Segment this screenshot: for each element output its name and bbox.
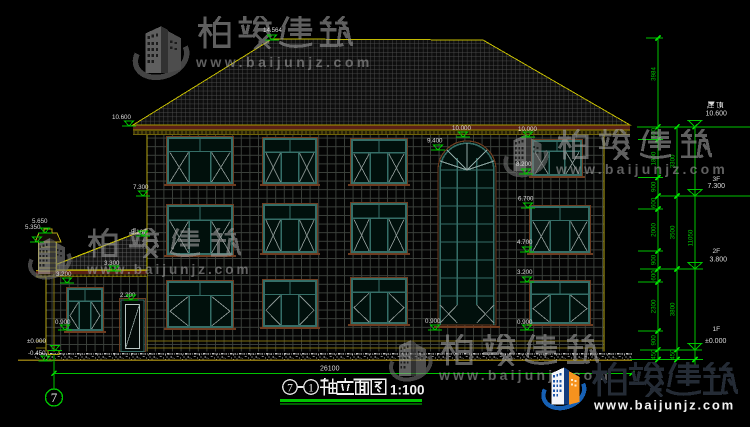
- svg-text:www.baijunjz.com: www.baijunjz.com: [438, 367, 611, 383]
- svg-text:900: 900: [650, 181, 657, 192]
- svg-text:www.baijunjz.com: www.baijunjz.com: [195, 54, 373, 70]
- svg-text:6.700: 6.700: [518, 195, 534, 202]
- svg-text:5.350: 5.350: [25, 224, 41, 231]
- svg-text:450: 450: [650, 349, 657, 360]
- svg-text:2F: 2F: [713, 248, 721, 255]
- svg-text:26100: 26100: [320, 365, 340, 372]
- svg-text:7: 7: [51, 390, 58, 405]
- svg-text:900: 900: [650, 254, 657, 265]
- svg-text:8.200: 8.200: [516, 161, 532, 168]
- svg-text:www.baijunjz.com: www.baijunjz.com: [555, 161, 728, 177]
- svg-text:10.000: 10.000: [452, 125, 471, 132]
- svg-text:3.800: 3.800: [710, 256, 728, 263]
- svg-text:0.900: 0.900: [425, 318, 441, 325]
- svg-text:3.200: 3.200: [56, 271, 72, 278]
- svg-text:±0.000: ±0.000: [705, 338, 726, 345]
- svg-text:9.400: 9.400: [427, 137, 443, 144]
- svg-text:1: 1: [308, 383, 314, 395]
- svg-text:600: 600: [650, 270, 657, 281]
- svg-text:7: 7: [287, 383, 293, 395]
- svg-text:10.600: 10.600: [706, 111, 728, 118]
- svg-text:7.300: 7.300: [133, 184, 149, 191]
- svg-text:3800: 3800: [669, 302, 676, 316]
- svg-text:3.200: 3.200: [517, 269, 533, 276]
- svg-text:4.700: 4.700: [517, 239, 533, 246]
- svg-text:±0.000: ±0.000: [27, 338, 46, 345]
- svg-text:450: 450: [669, 349, 676, 360]
- svg-text:900: 900: [650, 335, 657, 346]
- svg-text:10.600: 10.600: [112, 114, 131, 121]
- svg-text:7.300: 7.300: [708, 183, 726, 190]
- svg-text:1:100: 1:100: [390, 383, 425, 398]
- svg-text:2000: 2000: [650, 223, 657, 237]
- svg-text:3500: 3500: [669, 225, 676, 239]
- svg-text:3984: 3984: [650, 67, 657, 81]
- svg-text:2300: 2300: [650, 299, 657, 313]
- svg-text:14.564: 14.564: [263, 27, 282, 34]
- svg-text:11050: 11050: [687, 229, 694, 246]
- svg-text:www.baijunjz.com: www.baijunjz.com: [593, 398, 735, 413]
- svg-text:600: 600: [650, 197, 657, 208]
- svg-text:1F: 1F: [713, 326, 721, 333]
